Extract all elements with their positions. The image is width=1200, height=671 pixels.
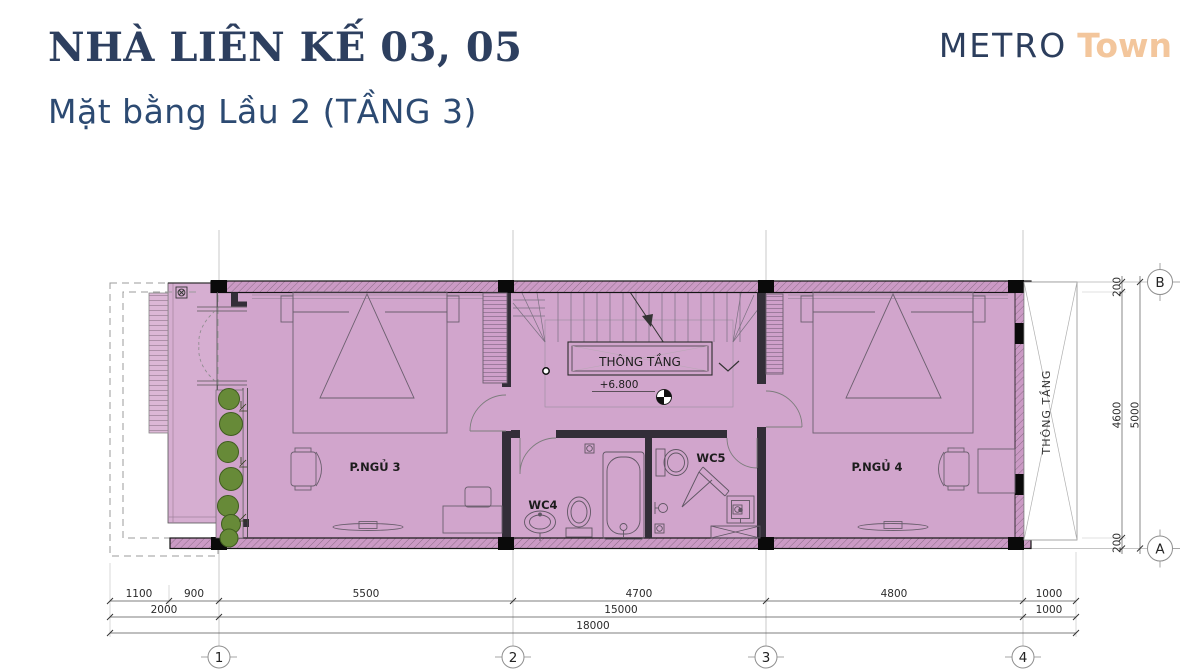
dim-text: 15000: [604, 604, 637, 616]
grid-bubble-3: 3: [762, 650, 771, 666]
grid-bubble-4: 4: [1019, 650, 1028, 666]
room-label-bedroom3: P.NGỦ 3: [349, 458, 400, 474]
dim-text: 2000: [151, 604, 178, 616]
dim-text: 200: [1112, 533, 1124, 553]
void-box-label: THÔNG TẦNG: [598, 353, 681, 369]
grid-bubble-2: 2: [509, 650, 518, 666]
grid-bubbles-right: B A: [1148, 263, 1181, 568]
dimension-rows: 1100 900 5500 4700 4800 1000 2000 15000 …: [107, 552, 1079, 637]
dim-text: 900: [184, 588, 204, 600]
dimension-row-2: 2000 15000 1000: [151, 604, 1063, 616]
dim-text: 4700: [626, 588, 653, 600]
level-text: +6.800: [600, 379, 639, 391]
dimension-row-1: 1100 900 5500 4700 4800 1000: [126, 588, 1063, 600]
grid-bubble-A: A: [1155, 542, 1165, 558]
room-label-wc4: WC4: [528, 498, 557, 512]
dim-text: 1000: [1036, 604, 1063, 616]
page: NHÀ LIÊN KẾ 03, 05 Mặt bằng Lầu 2 (TẦNG …: [0, 0, 1200, 671]
grid-bubble-1: 1: [215, 650, 224, 666]
dim-text: 1000: [1036, 588, 1063, 600]
grid-bubbles-bottom: 1 2 3 4: [201, 646, 1041, 668]
void-box: THÔNG TẦNG: [568, 342, 712, 375]
dim-text: 4800: [881, 588, 908, 600]
newel-post: [543, 368, 549, 374]
dim-text: 1100: [126, 588, 153, 600]
room-label-wc5: WC5: [696, 451, 725, 465]
floor-plan: THÔNG TẦNG +6.800: [0, 0, 1200, 671]
trellis: [149, 293, 168, 433]
room-label-bedroom4: P.NGỦ 4: [851, 458, 902, 474]
floor-fills: [149, 283, 1024, 538]
dim-text: 4600: [1112, 402, 1124, 429]
dimension-row-3: 18000: [576, 620, 609, 632]
void-strip: THÔNG TẦNG: [1024, 282, 1077, 540]
dim-text: 5000: [1130, 402, 1142, 429]
benchmark-icon: [657, 390, 672, 405]
dim-text: 5500: [353, 588, 380, 600]
dim-text: 18000: [576, 620, 609, 632]
void-strip-label: THÔNG TẦNG: [1039, 370, 1053, 456]
planter: [216, 389, 247, 548]
wardrobe-symbol: [766, 294, 783, 374]
grid-bubble-B: B: [1155, 275, 1164, 291]
wardrobe-symbol: [483, 293, 507, 383]
dimension-column-right: 200 4600 200 5000: [1082, 276, 1143, 554]
dim-text: 200: [1112, 277, 1124, 297]
